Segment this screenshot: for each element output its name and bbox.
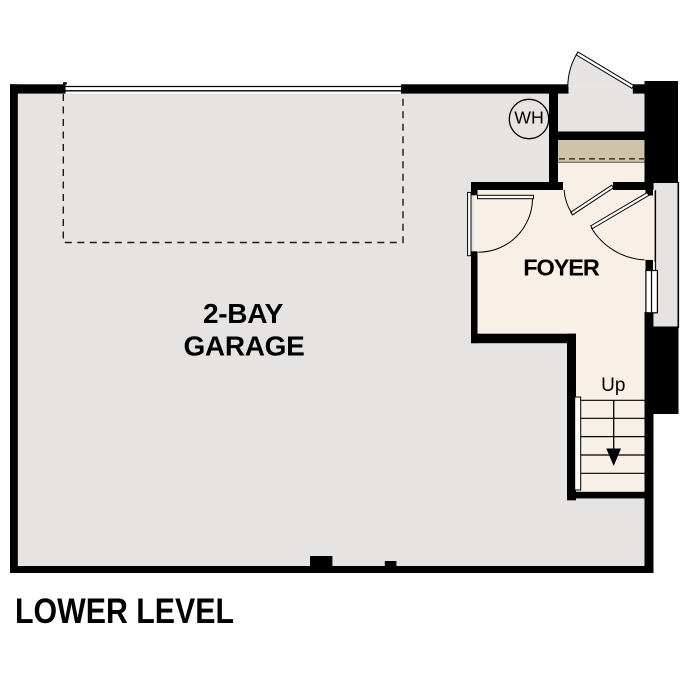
svg-text:GARAGE: GARAGE [183, 331, 304, 362]
svg-text:FOYER: FOYER [523, 255, 600, 281]
svg-text:2-BAY: 2-BAY [203, 298, 284, 329]
svg-text:LOWER LEVEL: LOWER LEVEL [15, 591, 234, 631]
svg-text:WH: WH [514, 108, 544, 128]
svg-text:Up: Up [601, 375, 625, 396]
